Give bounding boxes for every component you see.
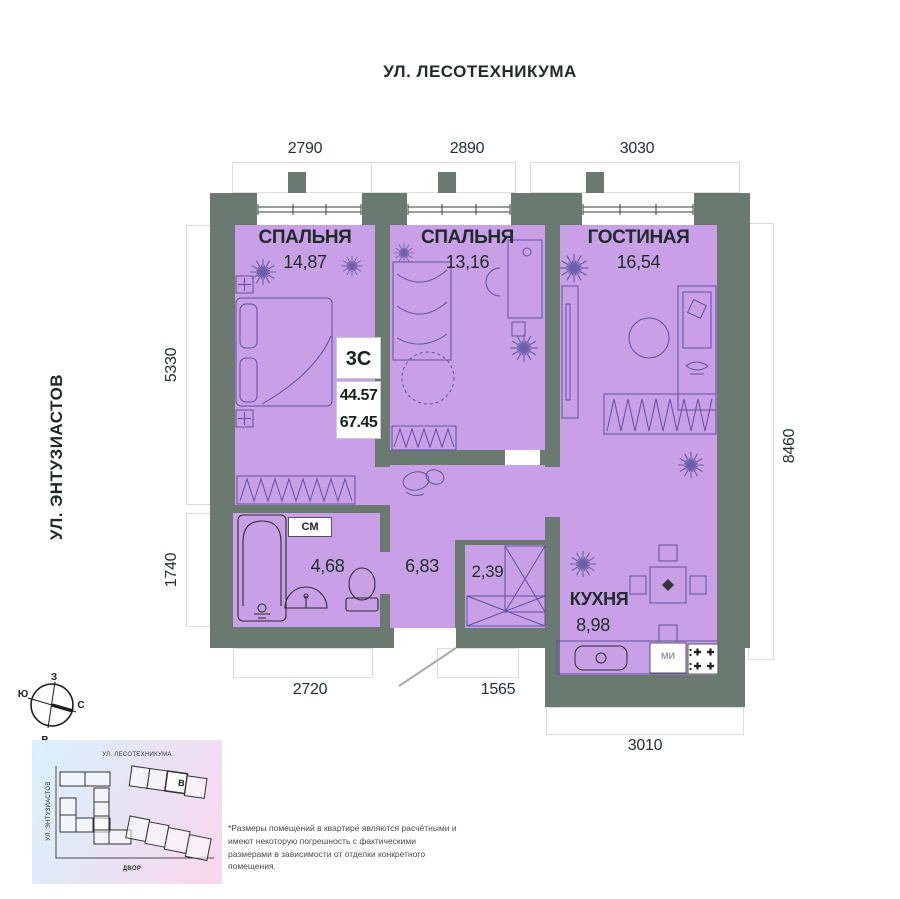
room-area-hall: 6,83 <box>390 556 454 577</box>
compass-south: Ю <box>18 689 28 700</box>
unit-area-living: 44.57 <box>337 382 380 410</box>
window-living <box>582 193 694 225</box>
room-label-living: ГОСТИНАЯ <box>560 227 717 249</box>
unit-type: 3С <box>337 338 380 380</box>
door-hall-kitchen <box>545 467 560 517</box>
bathroom-tag: СМ <box>288 517 332 537</box>
door-bathroom <box>380 552 390 594</box>
street-label-left: УЛ. ЭНТУЗИАСТОВ <box>47 357 67 557</box>
door-bedroom2 <box>505 450 540 465</box>
window-bedroom1 <box>257 193 362 225</box>
dim-extension-left-1 <box>186 225 212 505</box>
dim-extension-top-3 <box>530 162 740 193</box>
floorplan-page: { "streets": { "top": "УЛ. ЛЕСОТЕХНИКУМА… <box>0 0 900 899</box>
room-label-bedroom1: СПАЛЬНЯ <box>235 227 375 249</box>
dim-top-2: 2890 <box>427 140 507 158</box>
dim-extension-bottom-3 <box>546 707 744 735</box>
door-bedroom1 <box>375 467 390 505</box>
dim-extension-bottom-2 <box>437 648 519 678</box>
dim-bottom-2: 1565 <box>458 681 538 699</box>
room-area-bathroom: 4,68 <box>290 556 365 577</box>
room-label-bedroom2: СПАЛЬНЯ <box>390 227 545 249</box>
room-hall-lower <box>390 540 455 628</box>
dim-top-3: 3030 <box>597 140 677 158</box>
unit-areas-box: 44.57 67.45 <box>336 381 381 439</box>
wall-tab-2 <box>438 172 456 194</box>
room-area-living: 16,54 <box>560 252 717 273</box>
window-bedroom2 <box>407 193 511 225</box>
dim-left-2: 1740 <box>163 530 181 610</box>
dim-bottom-3: 3010 <box>605 737 685 755</box>
minimap-street-left: УЛ. ЭНТУЗИАСТОВ <box>46 761 52 861</box>
room-hall-upper <box>390 465 545 540</box>
unit-area-total: 67.45 <box>337 410 380 436</box>
compass-north: С <box>77 700 84 711</box>
minimap: В УЛ. ЛЕСОТЕХНИКУМА УЛ. ЭНТУЗИАСТОВ ДВОР <box>32 740 222 884</box>
room-label-kitchen: КУХНЯ <box>557 589 641 610</box>
dim-right-1: 8460 <box>781 406 799 486</box>
dim-left-1: 5330 <box>163 325 181 405</box>
wall-tab-1 <box>288 172 306 194</box>
dim-extension-left-2 <box>186 513 212 627</box>
room-area-kitchen: 8,98 <box>553 615 633 636</box>
compass-needle <box>52 705 73 711</box>
room-area-closet: 2,39 <box>455 562 520 582</box>
disclaimer-text: *Размеры помещений в квартире являются р… <box>228 822 458 873</box>
door-entrance <box>394 628 456 648</box>
minimap-yard-label: ДВОР <box>92 866 172 872</box>
washer-label: МИ <box>651 651 685 661</box>
dim-extension-bottom-1 <box>233 648 373 678</box>
room-closet <box>465 545 545 628</box>
dim-bottom-1: 2720 <box>270 681 350 699</box>
unit-type-box: 3С <box>336 337 381 379</box>
minimap-street-top: УЛ. ЛЕСОТЕХНИКУМА <box>62 752 212 758</box>
compass-west: З <box>51 672 57 683</box>
wall-tab-3 <box>586 172 604 194</box>
room-area-bedroom1: 14,87 <box>235 252 375 273</box>
dim-extension-right <box>748 223 774 660</box>
dim-top-1: 2790 <box>265 140 345 158</box>
minimap-buildings: В <box>32 740 222 884</box>
room-area-bedroom2: 13,16 <box>390 252 545 273</box>
street-label-top: УЛ. ЛЕСОТЕХНИКУМА <box>330 62 630 82</box>
